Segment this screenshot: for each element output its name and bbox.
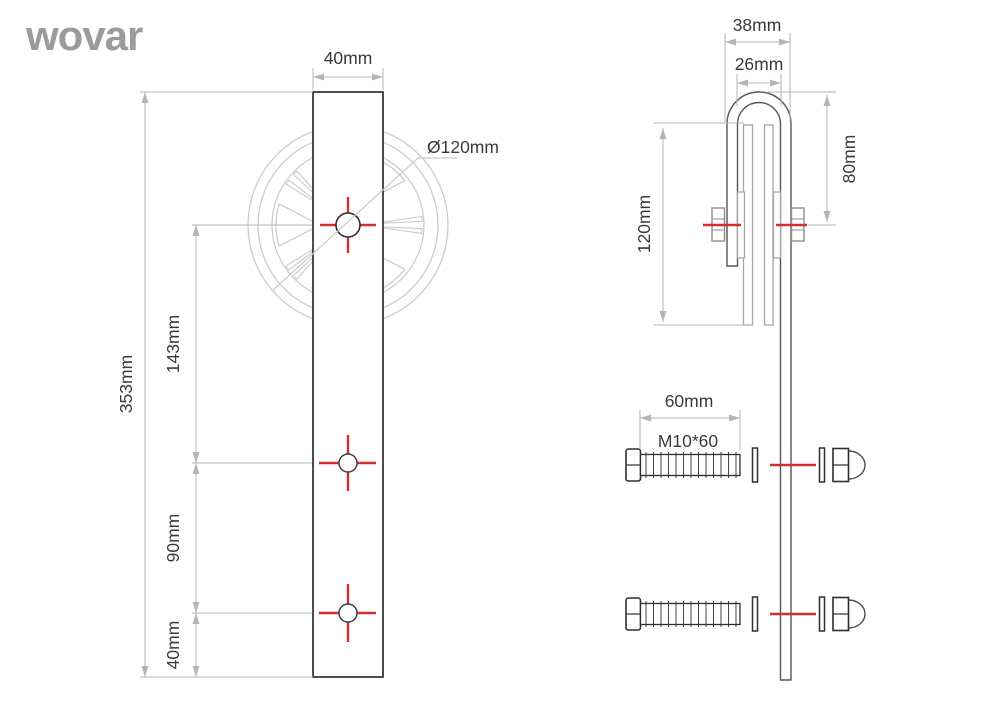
hook-outer-width-label: 38mm — [733, 15, 782, 35]
top-to-axle-label: 80mm — [839, 135, 859, 184]
wheel-diameter-label: Ø120mm — [427, 137, 499, 157]
wheel-hub-flanges — [738, 192, 781, 258]
technical-drawing: 40mm Ø120mm 353mm 143mm 90mm 40mm 38mm 2… — [0, 0, 1000, 706]
dimension-labels: 40mm Ø120mm 353mm 143mm 90mm 40mm 38mm 2… — [116, 15, 859, 669]
wheel-height-label: 120mm — [634, 195, 654, 253]
fastener-rows — [626, 448, 865, 631]
total-height-label: 353mm — [116, 355, 136, 413]
hole-to-end-label: 40mm — [163, 621, 183, 670]
dim-bar-width — [313, 68, 383, 90]
side-view — [703, 92, 807, 680]
center-to-hole-label: 143mm — [163, 315, 183, 373]
wheel-side — [744, 125, 774, 325]
bolt-spec-label: M10*60 — [658, 431, 719, 451]
hole-to-hole-label: 90mm — [163, 514, 183, 563]
bar-hook-side — [727, 92, 791, 680]
dim-hole-spacing — [192, 225, 312, 677]
bolt-assembly-bottom — [626, 597, 865, 631]
bolt-length-label: 60mm — [665, 391, 714, 411]
brand-logo: wovar — [25, 12, 143, 59]
bolt-assembly-top — [626, 448, 865, 482]
front-view — [248, 92, 448, 677]
bar-width-label: 40mm — [324, 48, 373, 68]
dimension-drawing-page: 40mm Ø120mm 353mm 143mm 90mm 40mm 38mm 2… — [0, 0, 1000, 706]
hook-inner-width-label: 26mm — [735, 54, 784, 74]
